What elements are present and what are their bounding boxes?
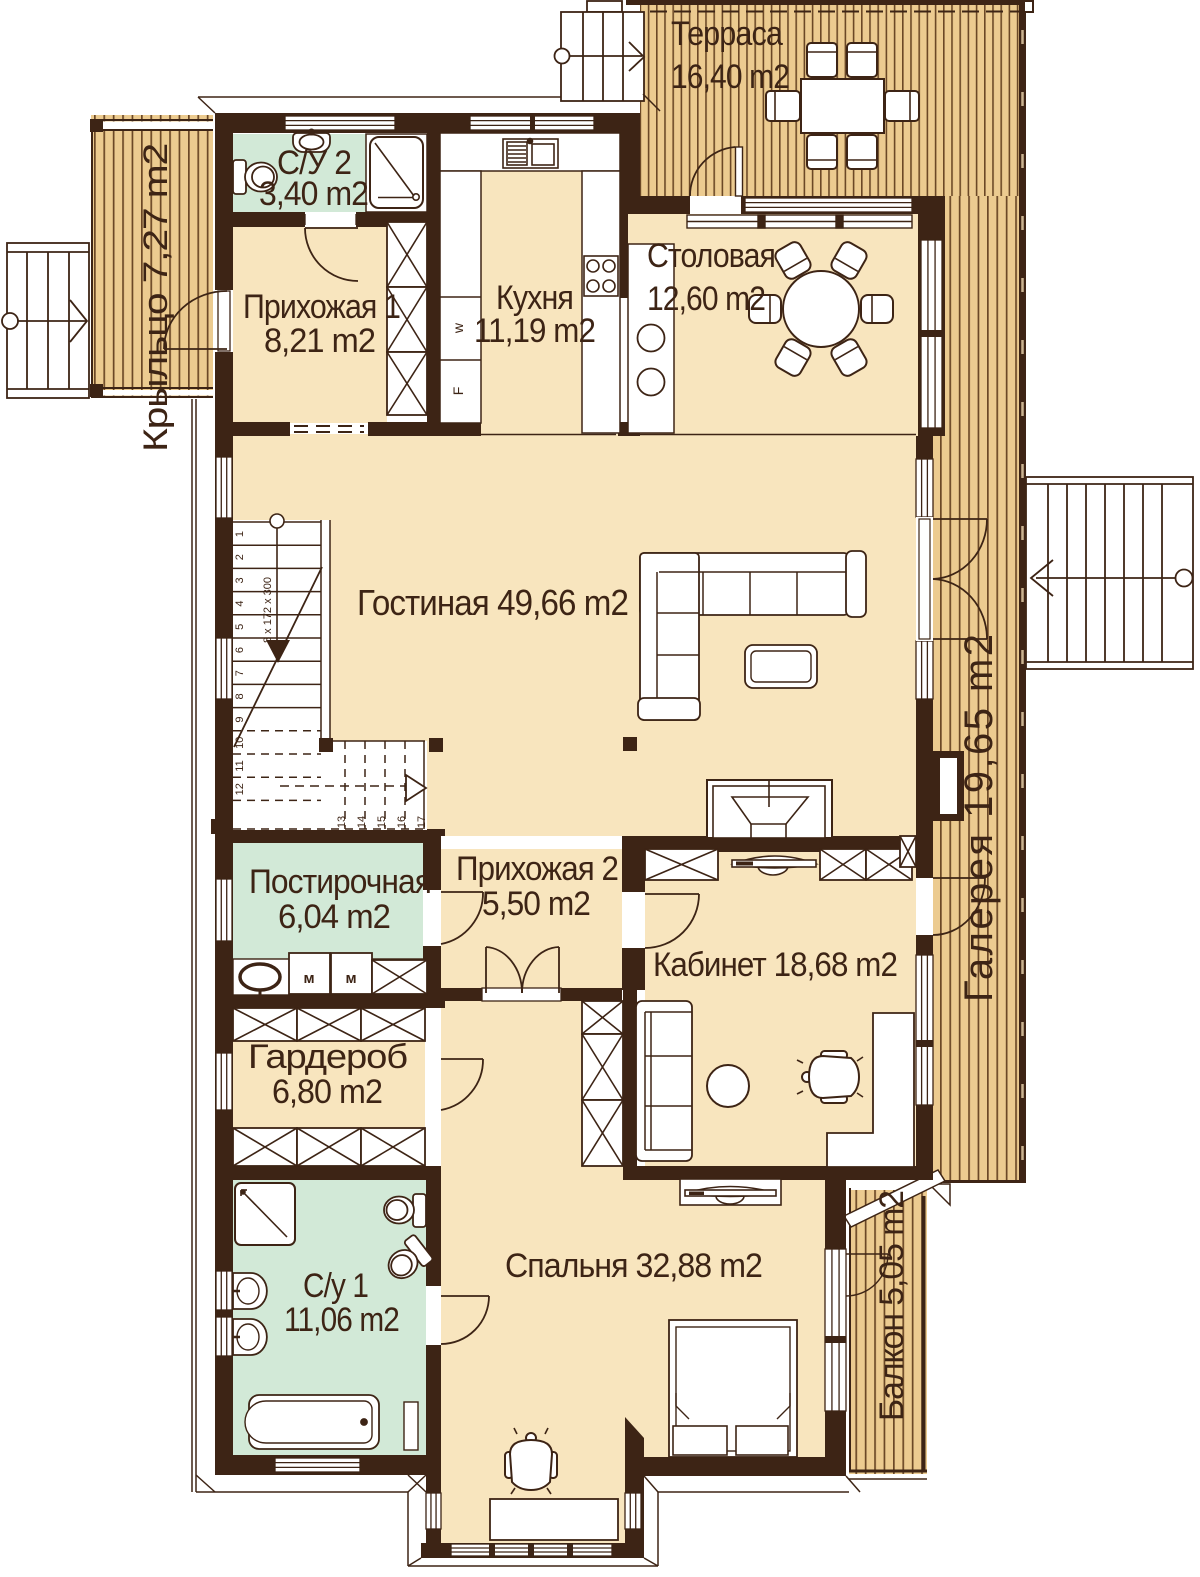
svg-text:11,06 m2: 11,06 m2 xyxy=(284,1301,399,1339)
svg-text:14: 14 xyxy=(356,816,368,828)
svg-text:м: м xyxy=(303,970,314,987)
svg-text:9: 9 xyxy=(234,717,246,723)
svg-text:Гардероб: Гардероб xyxy=(248,1038,408,1076)
svg-text:Столовая: Столовая xyxy=(647,237,775,275)
svg-text:12,60 m2: 12,60 m2 xyxy=(647,280,765,318)
svg-text:1: 1 xyxy=(234,531,246,537)
svg-text:15: 15 xyxy=(376,816,388,828)
svg-text:w: w xyxy=(450,322,466,334)
svg-text:12: 12 xyxy=(234,783,246,795)
svg-text:Гостиная 49,66 m2: Гостиная 49,66 m2 xyxy=(357,582,628,623)
svg-text:5: 5 xyxy=(234,624,246,630)
svg-text:F: F xyxy=(450,387,466,396)
svg-text:6,04 m2: 6,04 m2 xyxy=(278,898,390,936)
svg-text:16,40 m2: 16,40 m2 xyxy=(671,58,789,96)
svg-text:5,50 m2: 5,50 m2 xyxy=(482,885,590,923)
svg-text:8,21 m2: 8,21 m2 xyxy=(264,322,375,360)
svg-text:Постирочная: Постирочная xyxy=(249,863,431,901)
svg-text:С/у 1: С/у 1 xyxy=(303,1267,368,1305)
svg-text:Кабинет 18,68 m2: Кабинет 18,68 m2 xyxy=(653,946,897,984)
svg-text:6: 6 xyxy=(234,647,246,653)
svg-text:2: 2 xyxy=(234,554,246,560)
svg-text:11: 11 xyxy=(234,760,246,771)
svg-text:13: 13 xyxy=(336,816,348,828)
svg-text:Галерея 19,65 m2: Галерея 19,65 m2 xyxy=(957,634,1001,1002)
svg-text:3,40 m2: 3,40 m2 xyxy=(259,175,368,213)
svg-text:8 x 172 x 300: 8 x 172 x 300 xyxy=(262,577,274,643)
svg-text:Крыльцо 7,27 m2: Крыльцо 7,27 m2 xyxy=(137,144,175,452)
svg-text:Спальня 32,88 m2: Спальня 32,88 m2 xyxy=(505,1247,762,1285)
svg-text:Прихожая 2: Прихожая 2 xyxy=(456,850,618,888)
svg-text:м: м xyxy=(345,970,356,987)
svg-text:11,19 m2: 11,19 m2 xyxy=(474,312,595,350)
svg-text:Терраса: Терраса xyxy=(671,15,783,53)
svg-text:16: 16 xyxy=(396,816,408,828)
svg-text:8: 8 xyxy=(234,693,246,699)
svg-text:4: 4 xyxy=(234,601,246,607)
svg-text:Балкон 5,05 m2: Балкон 5,05 m2 xyxy=(873,1191,911,1421)
svg-text:Прихожая 1: Прихожая 1 xyxy=(243,288,400,326)
svg-text:10: 10 xyxy=(234,737,246,749)
svg-text:6,80 m2: 6,80 m2 xyxy=(272,1073,382,1111)
svg-text:17: 17 xyxy=(416,816,428,828)
svg-text:7: 7 xyxy=(234,670,246,676)
svg-text:3: 3 xyxy=(234,577,246,583)
